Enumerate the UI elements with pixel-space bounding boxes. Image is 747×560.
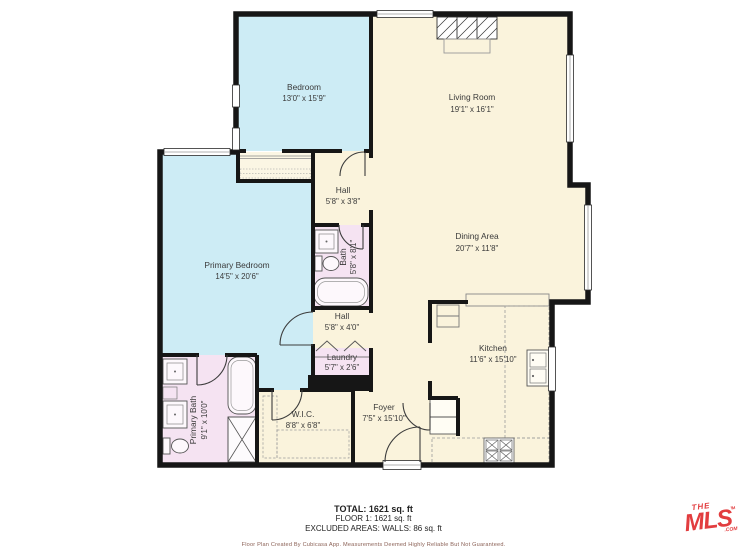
floorplan-svg: Bedroom 13'0" x 15'9" Living Room 19'1" …	[0, 0, 747, 560]
label-foyer-dims: 7'5" x 15'10"	[362, 414, 405, 423]
label-laundry-dims: 5'7" x 2'6"	[325, 363, 360, 372]
window-primary-bedroom-top	[164, 149, 230, 156]
label-hall-upper-dims: 5'8" x 3'8"	[326, 197, 361, 206]
label-dining-area-name: Dining Area	[455, 231, 499, 241]
window-bedroom-left-lower	[233, 128, 240, 150]
kitchen-sink-icon	[527, 350, 549, 386]
window-kitchen-right	[549, 347, 556, 391]
label-dining-area-dims: 20'7" x 11'8"	[456, 244, 499, 253]
label-bath-dims: 5'8" x 8'1"	[349, 240, 358, 275]
label-hall-lower-dims: 5'8" x 4'0"	[325, 323, 360, 332]
window-bedroom-left-upper	[233, 85, 240, 107]
primary-bath-tub-icon	[228, 357, 256, 414]
label-primary-bath-dims: 9'1" x 10'0"	[200, 400, 209, 439]
label-living-room-dims: 19'1" x 16'1"	[450, 105, 493, 114]
excluded-area-text: EXCLUDED AREAS: WALLS: 86 sq. ft	[0, 524, 747, 534]
label-kitchen-dims: 11'6" x 15'10"	[469, 355, 516, 364]
label-primary-bedroom-name: Primary Bedroom	[204, 260, 269, 270]
label-primary-bedroom-dims: 14'5" x 20'6"	[215, 272, 258, 281]
label-kitchen-name: Kitchen	[479, 343, 507, 353]
area-summary: TOTAL: 1621 sq. ft FLOOR 1: 1621 sq. ft …	[0, 504, 747, 534]
label-bedroom-name: Bedroom	[287, 82, 321, 92]
kitchen-stove-icon	[484, 438, 514, 463]
label-wic-name: W.I.C.	[292, 409, 315, 419]
mls-logo-tm: TM	[730, 505, 734, 510]
floor-area-text: FLOOR 1: 1621 sq. ft	[0, 514, 747, 524]
bath-toilet-icon	[315, 256, 339, 271]
kitchen-counter-bar	[466, 294, 549, 306]
entry-door-opening	[383, 461, 421, 470]
label-foyer-name: Foyer	[373, 402, 395, 412]
foyer-closet-icon	[430, 399, 457, 434]
disclaimer-text: Floor Plan Created By Cubicasa App. Meas…	[0, 542, 747, 548]
label-hall-lower-name: Hall	[335, 311, 350, 321]
floorplan-page: Bedroom 13'0" x 15'9" Living Room 19'1" …	[0, 0, 747, 560]
bath-sink-icon	[315, 230, 338, 253]
primary-bath-toilet-icon	[163, 438, 189, 454]
label-laundry-name: Laundry	[327, 352, 358, 362]
total-area-text: TOTAL: 1621 sq. ft	[0, 504, 747, 514]
label-bedroom-dims: 13'0" x 15'9"	[282, 94, 325, 103]
bath-tub-icon	[314, 278, 368, 306]
label-hall-upper-name: Hall	[336, 185, 351, 195]
primary-bath-shower-icon	[228, 417, 256, 462]
room-fills	[160, 14, 588, 465]
mls-logo: THE MLSTM .COM	[682, 499, 740, 538]
window-top-living	[377, 11, 433, 18]
label-primary-bath-name: Primary Bath	[188, 395, 198, 444]
window-living-right	[567, 55, 574, 142]
label-living-room-name: Living Room	[449, 92, 496, 102]
label-bath-name: Bath	[338, 248, 348, 266]
laundry-bottom-wall	[308, 375, 373, 391]
label-wic-dims: 8'8" x 6'8"	[286, 421, 321, 430]
window-dining-right	[585, 205, 592, 290]
